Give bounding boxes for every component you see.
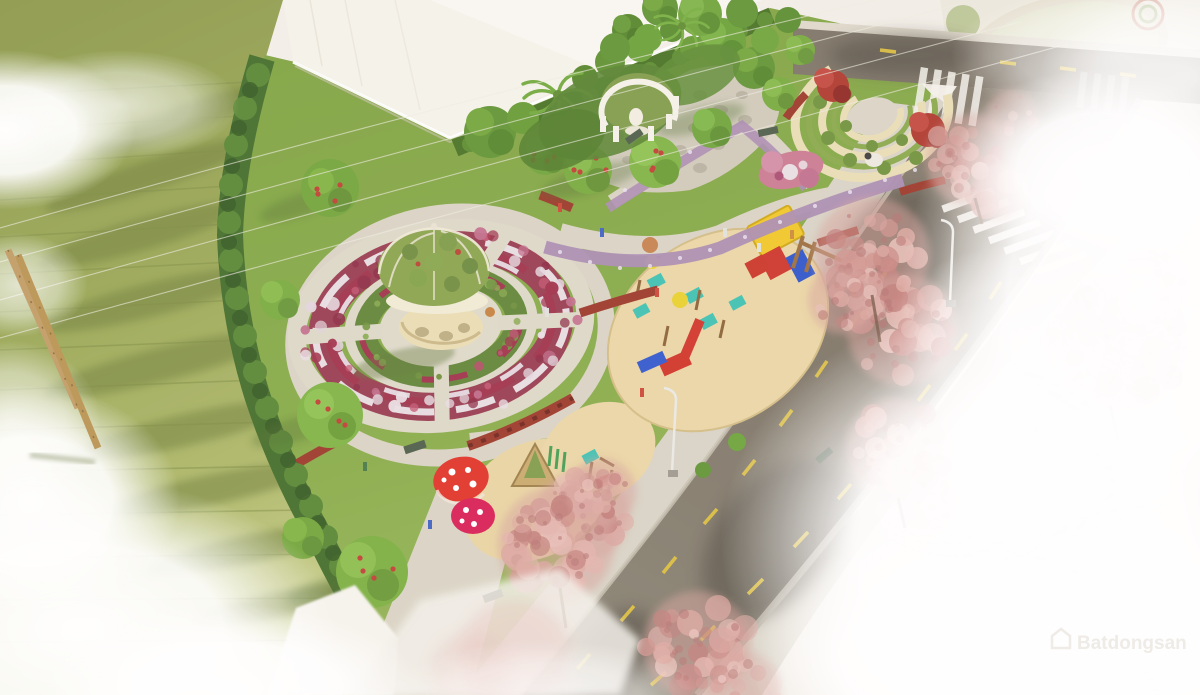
svg-text:Batdongsan: Batdongsan [1077, 633, 1187, 654]
